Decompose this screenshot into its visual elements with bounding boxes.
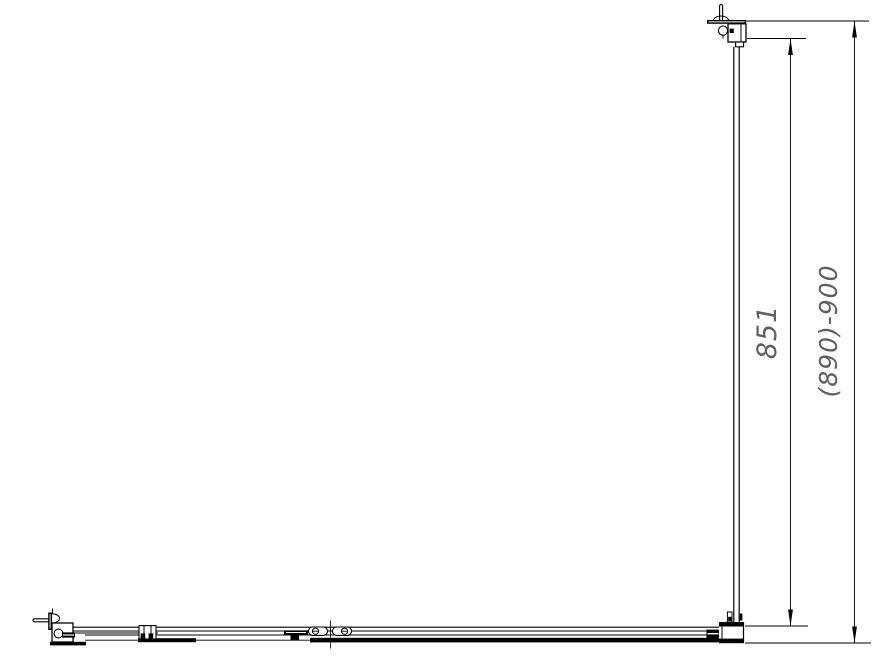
corner-top-band — [719, 622, 744, 627]
right-glass-profile — [734, 47, 739, 622]
bottom-rail — [73, 627, 719, 642]
bracket-base-left — [50, 642, 86, 646]
bracket-step-top — [736, 42, 744, 47]
arrow-down-icon — [852, 627, 857, 644]
rail-clamp — [139, 626, 156, 639]
bracket-pin-top — [720, 5, 723, 22]
corner-bottom-band — [719, 639, 744, 644]
wall-bracket-top — [707, 5, 746, 47]
arrow-up-icon — [788, 39, 793, 56]
arrow-up-icon — [852, 21, 857, 38]
screw-icon — [54, 629, 63, 638]
rail-bottom-band — [310, 638, 719, 643]
screw-icon — [718, 26, 727, 35]
dimension-label-glass-height: 851 — [752, 305, 783, 360]
profile-bottom-fitting — [727, 612, 742, 622]
shower-enclosure-plan-drawing: 851 (890)-900 — [0, 0, 890, 665]
technical-drawing-canvas: 851 (890)-900 — [0, 0, 890, 665]
dimension-890-900: (890)-900 — [814, 21, 857, 643]
bracket-arc-left — [52, 614, 60, 623]
dimension-851: 851 — [752, 39, 793, 627]
dimension-label-overall-height: (890)-900 — [814, 265, 843, 398]
bracket-pin-left — [33, 619, 50, 622]
arrow-down-icon — [788, 610, 793, 627]
